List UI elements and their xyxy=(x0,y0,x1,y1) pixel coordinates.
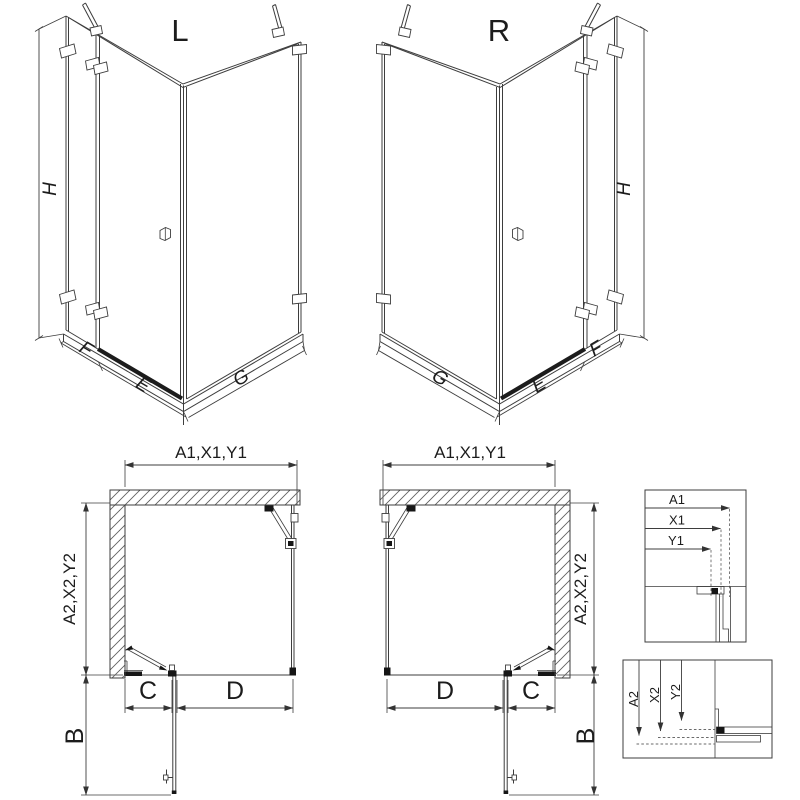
shower-enclosure-technical-drawing: L H F E G R H G E F A1,X1,Y1 A2,X2,Y2 C … xyxy=(0,0,800,800)
side-panel-dim-left: G xyxy=(230,365,253,391)
plan-right-dim-c: C xyxy=(522,677,540,705)
detail-box-depth xyxy=(623,660,772,758)
drawing-canvas: L H F E G R H G E F A1,X1,Y1 A2,X2,Y2 C … xyxy=(0,0,800,800)
detail-width-a1: A1 xyxy=(669,492,685,507)
wall-top-left-plan xyxy=(110,490,300,505)
wall-side-right-plan xyxy=(555,505,570,678)
plan-left-dim-d: D xyxy=(226,677,244,705)
plan-left-dim-c: C xyxy=(139,677,157,705)
wall-top-right-plan xyxy=(380,490,570,505)
detail-box-width xyxy=(645,490,746,642)
variant-label-right: R xyxy=(488,13,510,48)
side-panel-dim-right: G xyxy=(428,365,451,391)
wall-side-left-plan xyxy=(110,505,125,678)
height-dim-label-left: H xyxy=(40,182,61,196)
plan-right-width-dim: A1,X1,Y1 xyxy=(434,443,506,462)
detail-depth-x2: X2 xyxy=(647,687,662,703)
detail-depth-y2: Y2 xyxy=(668,684,683,700)
plan-right-dim-d: D xyxy=(436,677,454,705)
iso-view-right xyxy=(377,3,649,425)
variant-label-left: L xyxy=(171,13,188,48)
plan-left-width-dim: A1,X1,Y1 xyxy=(175,443,247,462)
detail-width-y1: Y1 xyxy=(668,533,684,548)
height-dim-label-right: H xyxy=(614,182,635,196)
plan-left-dim-b: B xyxy=(61,728,89,745)
detail-depth-a2: A2 xyxy=(626,691,641,707)
plan-left-depth-dim: A2,X2,Y2 xyxy=(60,553,79,625)
fixed-panel-dim-left: F xyxy=(75,337,97,362)
iso-view-left xyxy=(35,3,307,425)
plan-right-depth-dim: A2,X2,Y2 xyxy=(571,553,590,625)
plan-right-dim-b: B xyxy=(572,728,600,745)
fixed-panel-dim-right: F xyxy=(586,337,608,362)
detail-width-x1: X1 xyxy=(669,513,685,528)
